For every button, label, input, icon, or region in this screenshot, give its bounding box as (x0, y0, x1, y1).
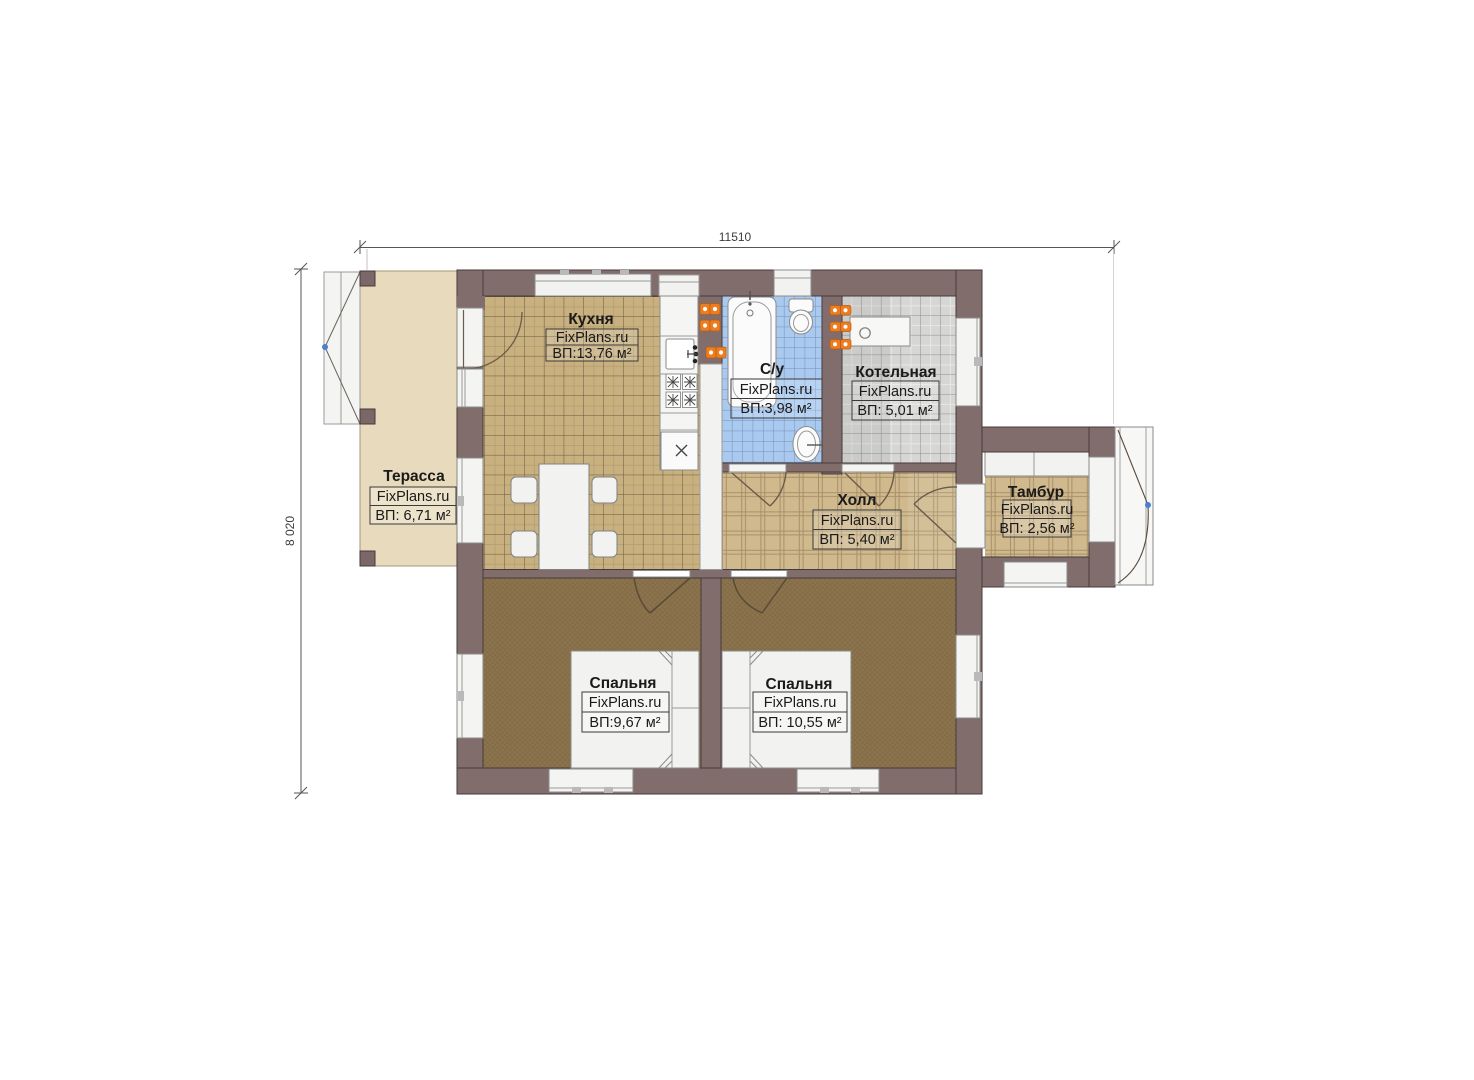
svg-text:ВП:13,76 м²: ВП:13,76 м² (552, 346, 631, 362)
svg-text:FixPlans.ru: FixPlans.ru (821, 513, 894, 529)
svg-text:8 020: 8 020 (283, 516, 297, 546)
svg-text:Спальня: Спальня (766, 676, 833, 693)
svg-text:Спальня: Спальня (590, 675, 657, 692)
svg-text:FixPlans.ru: FixPlans.ru (1001, 502, 1074, 518)
svg-text:FixPlans.ru: FixPlans.ru (589, 695, 662, 711)
svg-text:ВП: 5,40 м²: ВП: 5,40 м² (819, 532, 894, 548)
svg-text:ВП:9,67 м²: ВП:9,67 м² (589, 715, 660, 731)
svg-text:Котельная: Котельная (855, 364, 936, 381)
svg-text:FixPlans.ru: FixPlans.ru (859, 384, 932, 400)
svg-text:ВП: 5,01 м²: ВП: 5,01 м² (857, 403, 932, 419)
svg-text:FixPlans.ru: FixPlans.ru (377, 489, 450, 505)
svg-text:FixPlans.ru: FixPlans.ru (764, 695, 837, 711)
svg-text:Кухня: Кухня (568, 311, 613, 328)
svg-text:ВП: 6,71 м²: ВП: 6,71 м² (375, 508, 450, 524)
svg-text:С/у: С/у (760, 361, 785, 378)
svg-text:11510: 11510 (719, 230, 752, 244)
svg-text:ВП: 2,56 м²: ВП: 2,56 м² (999, 521, 1074, 537)
svg-text:ВП: 10,55 м²: ВП: 10,55 м² (758, 715, 841, 731)
svg-text:Тамбур: Тамбур (1008, 484, 1064, 501)
svg-text:Терасса: Терасса (383, 468, 445, 485)
svg-text:Холл: Холл (838, 492, 877, 509)
svg-text:FixPlans.ru: FixPlans.ru (556, 330, 629, 346)
svg-text:ВП:3,98 м²: ВП:3,98 м² (740, 401, 811, 417)
svg-text:FixPlans.ru: FixPlans.ru (740, 382, 813, 398)
